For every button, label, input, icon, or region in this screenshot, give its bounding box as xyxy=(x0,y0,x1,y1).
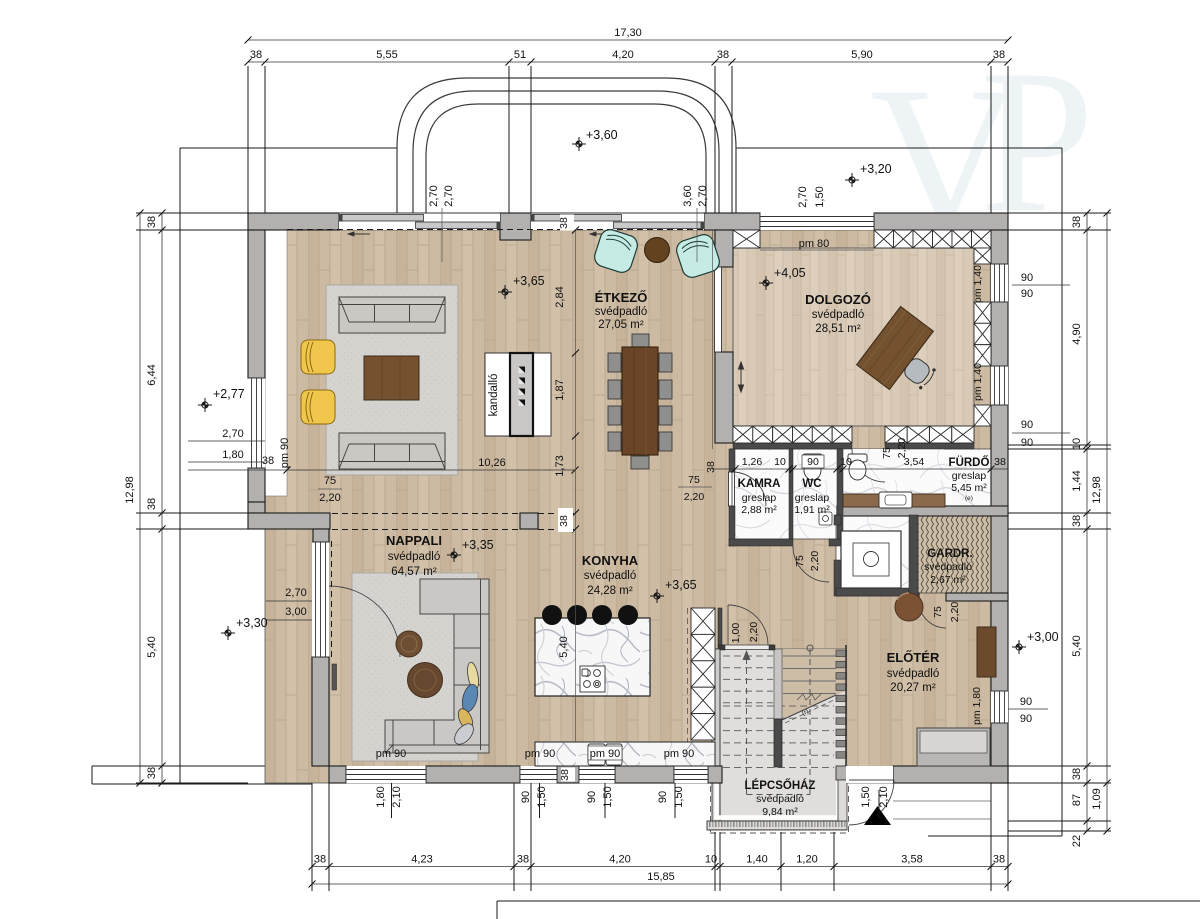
svg-text:svédpadló: svédpadló xyxy=(924,561,972,573)
svg-text:FÜRDŐ: FÜRDŐ xyxy=(949,456,990,469)
svg-text:38: 38 xyxy=(314,854,326,866)
svg-text:90: 90 xyxy=(1020,696,1032,708)
svg-text:38: 38 xyxy=(1071,515,1083,527)
svg-text:5,40: 5,40 xyxy=(1071,635,1083,656)
svg-text:38: 38 xyxy=(517,854,529,866)
svg-text:svédpadló: svédpadló xyxy=(584,570,636,582)
svg-text:3,60: 3,60 xyxy=(682,185,694,206)
svg-text:1,26: 1,26 xyxy=(742,456,763,468)
svg-text:2,70: 2,70 xyxy=(697,185,709,206)
svg-text:38: 38 xyxy=(262,455,274,467)
svg-text:KONYHA: KONYHA xyxy=(582,553,639,568)
svg-text:1,00: 1,00 xyxy=(730,623,742,644)
svg-text:2,10: 2,10 xyxy=(391,786,403,807)
svg-text:2,70: 2,70 xyxy=(222,428,243,440)
svg-text:2,70: 2,70 xyxy=(285,587,306,599)
svg-text:1,73: 1,73 xyxy=(554,455,566,476)
svg-text:WC: WC xyxy=(802,478,821,490)
svg-text:5,45 m²: 5,45 m² xyxy=(951,482,987,494)
svg-text:GARDR.: GARDR. xyxy=(927,548,972,560)
svg-text:38: 38 xyxy=(1071,768,1083,780)
svg-text:38: 38 xyxy=(717,49,729,61)
svg-text:greslap: greslap xyxy=(742,492,777,504)
svg-text:1,91 m²: 1,91 m² xyxy=(794,504,830,516)
svg-text:+4,05: +4,05 xyxy=(774,266,806,280)
svg-text:+3,30: +3,30 xyxy=(236,616,268,630)
svg-text:38: 38 xyxy=(250,49,262,61)
svg-text:+2,77: +2,77 xyxy=(213,387,245,401)
svg-text:ÉTKEZŐ: ÉTKEZŐ xyxy=(595,290,648,305)
svg-text:1,44: 1,44 xyxy=(1071,470,1083,491)
svg-text:+3,65: +3,65 xyxy=(513,274,545,288)
svg-text:90: 90 xyxy=(1021,437,1033,449)
svg-text:pm 1,80: pm 1,80 xyxy=(971,687,983,725)
svg-text:38: 38 xyxy=(146,767,158,779)
svg-text:2,20: 2,20 xyxy=(896,438,908,459)
svg-text:12,98: 12,98 xyxy=(1091,476,1103,504)
svg-text:greslap: greslap xyxy=(795,492,830,504)
svg-text:2,70: 2,70 xyxy=(443,185,455,206)
svg-text:2,20: 2,20 xyxy=(748,622,760,643)
svg-text:+3,35: +3,35 xyxy=(462,538,494,552)
svg-text:3,00: 3,00 xyxy=(285,606,306,618)
svg-text:51: 51 xyxy=(514,49,526,61)
svg-text:4,20: 4,20 xyxy=(612,49,633,61)
svg-text:75: 75 xyxy=(881,447,893,459)
svg-text:12,98: 12,98 xyxy=(124,476,136,504)
svg-text:38: 38 xyxy=(705,461,717,473)
svg-text:2,10: 2,10 xyxy=(878,786,890,807)
svg-text:1,80: 1,80 xyxy=(375,786,387,807)
svg-text:90: 90 xyxy=(586,791,598,803)
svg-text:10: 10 xyxy=(1071,438,1083,450)
svg-text:pm 80: pm 80 xyxy=(799,238,830,250)
svg-text:38: 38 xyxy=(993,49,1005,61)
svg-text:15,85: 15,85 xyxy=(647,871,675,883)
svg-text:20,27 m²: 20,27 m² xyxy=(890,682,936,694)
svg-text:1,50: 1,50 xyxy=(860,786,872,807)
svg-text:1,40: 1,40 xyxy=(746,854,767,866)
svg-text:ELŐTÉR: ELŐTÉR xyxy=(887,650,940,665)
svg-text:greslap: greslap xyxy=(952,470,987,482)
svg-text:64,57 m²: 64,57 m² xyxy=(391,566,437,578)
svg-text:pm 90: pm 90 xyxy=(279,438,291,469)
svg-text:2,20: 2,20 xyxy=(809,551,821,572)
svg-text:2,20: 2,20 xyxy=(319,492,340,504)
svg-text:22: 22 xyxy=(1071,835,1083,847)
svg-text:4,90: 4,90 xyxy=(1071,323,1083,344)
svg-text:pm 90: pm 90 xyxy=(376,748,407,760)
svg-text:1,80: 1,80 xyxy=(222,449,243,461)
svg-text:DOLGOZÓ: DOLGOZÓ xyxy=(805,292,871,307)
svg-text:5,55: 5,55 xyxy=(376,49,397,61)
svg-text:38: 38 xyxy=(146,216,158,228)
svg-text:28,51 m²: 28,51 m² xyxy=(815,323,861,335)
svg-text:38: 38 xyxy=(1071,216,1083,228)
svg-text:1,87: 1,87 xyxy=(554,379,566,400)
svg-text:10: 10 xyxy=(774,456,786,468)
svg-text:2,84: 2,84 xyxy=(554,286,566,307)
svg-text:1,20: 1,20 xyxy=(796,854,817,866)
svg-text:+3,00: +3,00 xyxy=(1027,630,1059,644)
svg-text:kandalló: kandalló xyxy=(488,374,500,417)
svg-text:10,26: 10,26 xyxy=(478,457,506,469)
svg-text:5,90: 5,90 xyxy=(851,49,872,61)
svg-text:4,20: 4,20 xyxy=(609,854,630,866)
svg-text:1,50: 1,50 xyxy=(814,186,826,207)
svg-text:10: 10 xyxy=(840,456,852,468)
svg-text:1,50: 1,50 xyxy=(536,786,548,807)
svg-text:2,70: 2,70 xyxy=(428,185,440,206)
svg-text:pm 1,40: pm 1,40 xyxy=(972,265,984,303)
svg-text:90: 90 xyxy=(807,456,819,468)
svg-text:90: 90 xyxy=(1021,272,1033,284)
svg-text:pm 1,40: pm 1,40 xyxy=(972,363,984,401)
svg-text:+3,60: +3,60 xyxy=(586,128,618,142)
svg-text:2,20: 2,20 xyxy=(949,602,961,623)
svg-text:3,58: 3,58 xyxy=(901,854,922,866)
svg-text:svédpadló: svédpadló xyxy=(812,309,864,321)
svg-text:38: 38 xyxy=(993,854,1005,866)
svg-text:38: 38 xyxy=(146,498,158,510)
svg-text:38: 38 xyxy=(558,217,570,229)
svg-text:2,70: 2,70 xyxy=(797,186,809,207)
svg-text:2,67 m²: 2,67 m² xyxy=(930,574,966,586)
svg-text:90: 90 xyxy=(1021,288,1033,300)
svg-text:1,09: 1,09 xyxy=(1091,788,1103,809)
svg-text:90: 90 xyxy=(657,791,669,803)
svg-text:24,28 m²: 24,28 m² xyxy=(587,585,633,597)
svg-text:pm 90: pm 90 xyxy=(664,748,695,760)
svg-text:17,30: 17,30 xyxy=(614,27,642,39)
svg-text:2,88 m²: 2,88 m² xyxy=(741,504,777,516)
svg-text:(e): (e) xyxy=(965,495,973,502)
svg-text:90: 90 xyxy=(520,791,532,803)
svg-text:+3,20: +3,20 xyxy=(860,162,892,176)
svg-text:5,40: 5,40 xyxy=(558,636,570,657)
svg-text:75: 75 xyxy=(324,475,336,487)
svg-text:LÉPCSŐHÁZ: LÉPCSŐHÁZ xyxy=(745,779,816,792)
svg-text:KAMRA: KAMRA xyxy=(738,478,781,490)
svg-text:38: 38 xyxy=(558,515,570,527)
svg-text:6,44: 6,44 xyxy=(146,364,158,385)
svg-text:9,84 m²: 9,84 m² xyxy=(762,806,798,818)
svg-text:75: 75 xyxy=(932,606,944,618)
svg-text:svédpadló: svédpadló xyxy=(887,668,939,680)
svg-text:5,40: 5,40 xyxy=(146,636,158,657)
svg-text:87: 87 xyxy=(1071,794,1083,806)
svg-text:2,20: 2,20 xyxy=(684,491,705,503)
svg-text:75: 75 xyxy=(688,474,700,486)
svg-text:27,05 m²: 27,05 m² xyxy=(598,319,644,331)
svg-text:90: 90 xyxy=(1020,713,1032,725)
svg-text:pm 90: pm 90 xyxy=(590,748,621,760)
svg-text:svédpadló: svédpadló xyxy=(388,551,440,563)
svg-text:90: 90 xyxy=(1021,419,1033,431)
svg-text:svédpadló: svédpadló xyxy=(756,793,804,805)
svg-text:1,50: 1,50 xyxy=(602,786,614,807)
svg-text:38: 38 xyxy=(559,769,571,781)
svg-text:NAPPALI: NAPPALI xyxy=(386,533,442,548)
svg-text:75: 75 xyxy=(794,555,806,567)
svg-text:pm 90: pm 90 xyxy=(525,748,556,760)
svg-text:svédpadló: svédpadló xyxy=(595,306,647,318)
svg-text:+3,65: +3,65 xyxy=(665,578,697,592)
svg-text:38: 38 xyxy=(994,456,1006,468)
svg-text:4,23: 4,23 xyxy=(411,854,432,866)
